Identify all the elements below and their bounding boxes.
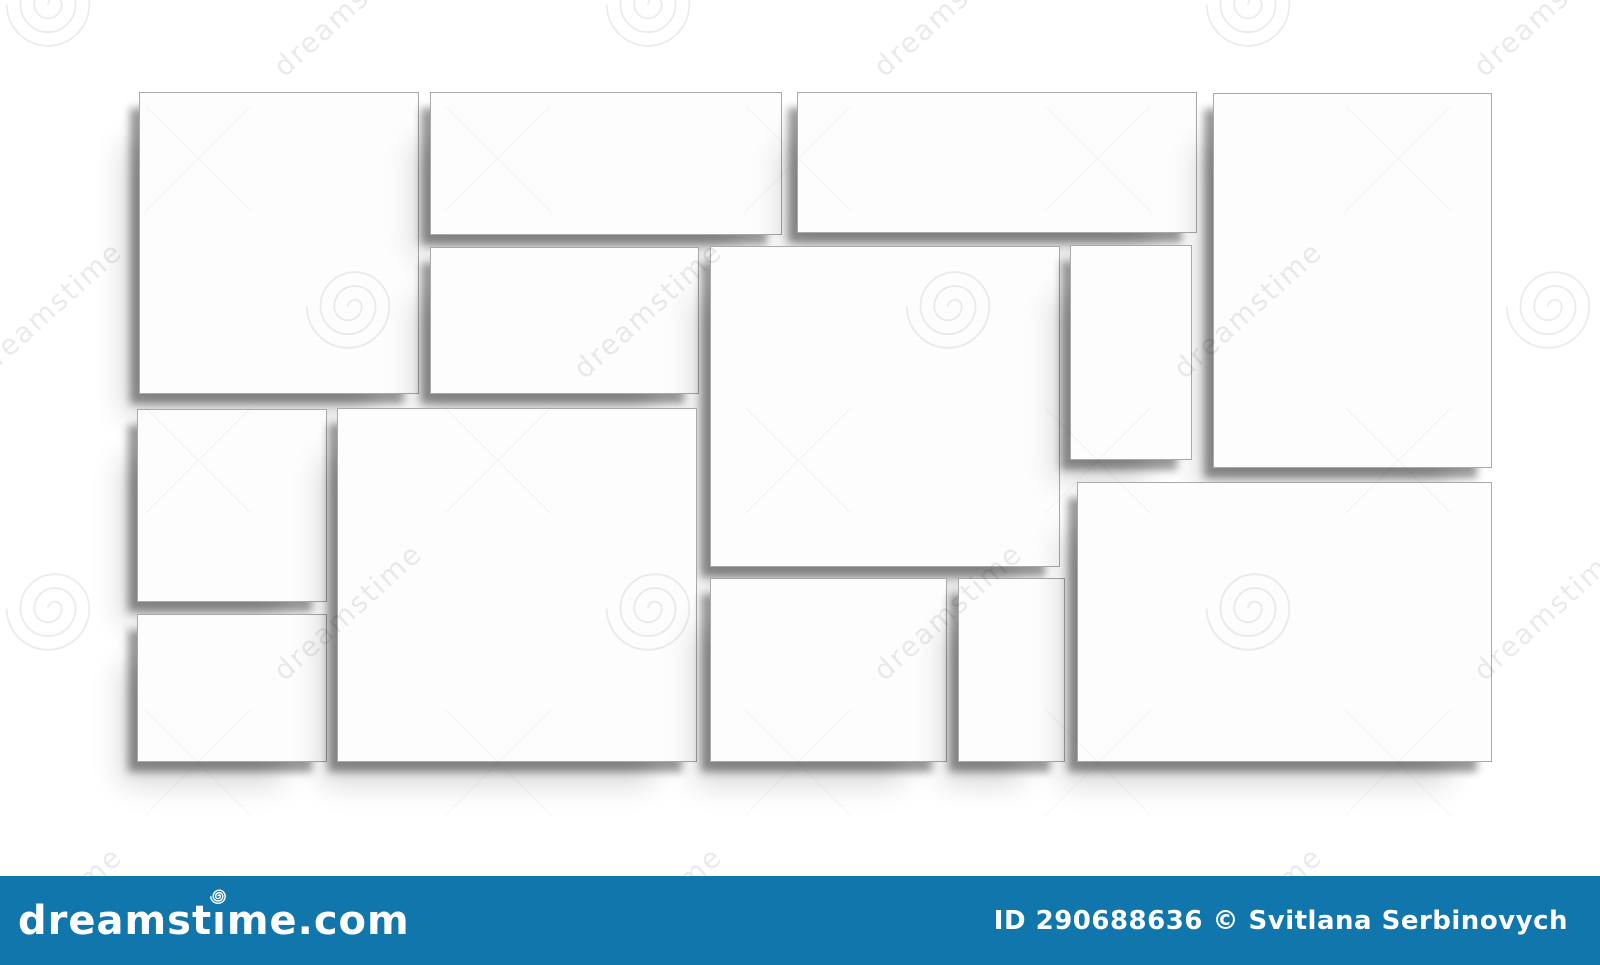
collage-frame-2 <box>430 92 782 235</box>
footer-bar: dreamstıme.com ID 290688636 © Svitlana S… <box>0 876 1600 965</box>
collage-frame-9 <box>137 614 327 762</box>
collage-frame-7 <box>1070 245 1192 460</box>
collage-frame-1 <box>139 92 419 394</box>
logo-text-end: me.com <box>227 898 410 944</box>
collage-frame-5 <box>430 247 699 394</box>
logo-letter-i-glyph: ı <box>212 898 227 944</box>
collage-frame-11 <box>710 578 947 762</box>
collage-frame-10 <box>337 408 697 762</box>
spiral-icon <box>210 889 226 904</box>
collage-frame-8 <box>137 409 327 602</box>
collage-frame-4 <box>1213 93 1492 468</box>
collage-frame-13 <box>1077 482 1492 762</box>
collage-grid <box>0 0 1600 965</box>
credit-text: ID 290688636 © Svitlana Serbinovych <box>994 908 1568 934</box>
dreamstime-logo: dreamstıme.com <box>18 901 410 941</box>
stock-image-canvas: dreamstimedreamstimedreamstimedreamstime… <box>0 0 1600 965</box>
collage-frame-6 <box>710 246 1060 567</box>
logo-letter-i: ı <box>212 901 227 941</box>
collage-frame-3 <box>797 92 1197 233</box>
logo-text-start: dreamst <box>18 898 212 944</box>
collage-frame-12 <box>958 578 1065 762</box>
